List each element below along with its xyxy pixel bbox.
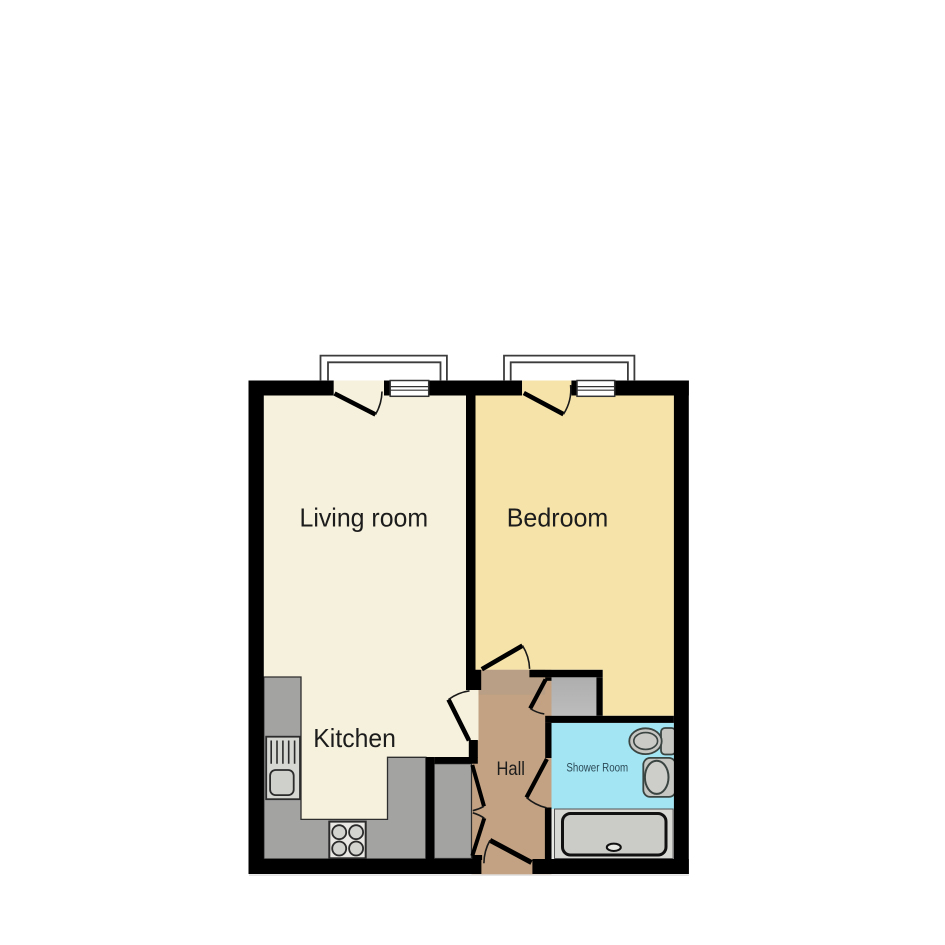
- svg-text:Shower Room: Shower Room: [566, 763, 628, 775]
- svg-text:Living room: Living room: [300, 503, 429, 533]
- svg-text:Bedroom: Bedroom: [507, 503, 609, 533]
- svg-text:Kitchen: Kitchen: [313, 723, 396, 753]
- svg-text:Hall: Hall: [497, 758, 525, 780]
